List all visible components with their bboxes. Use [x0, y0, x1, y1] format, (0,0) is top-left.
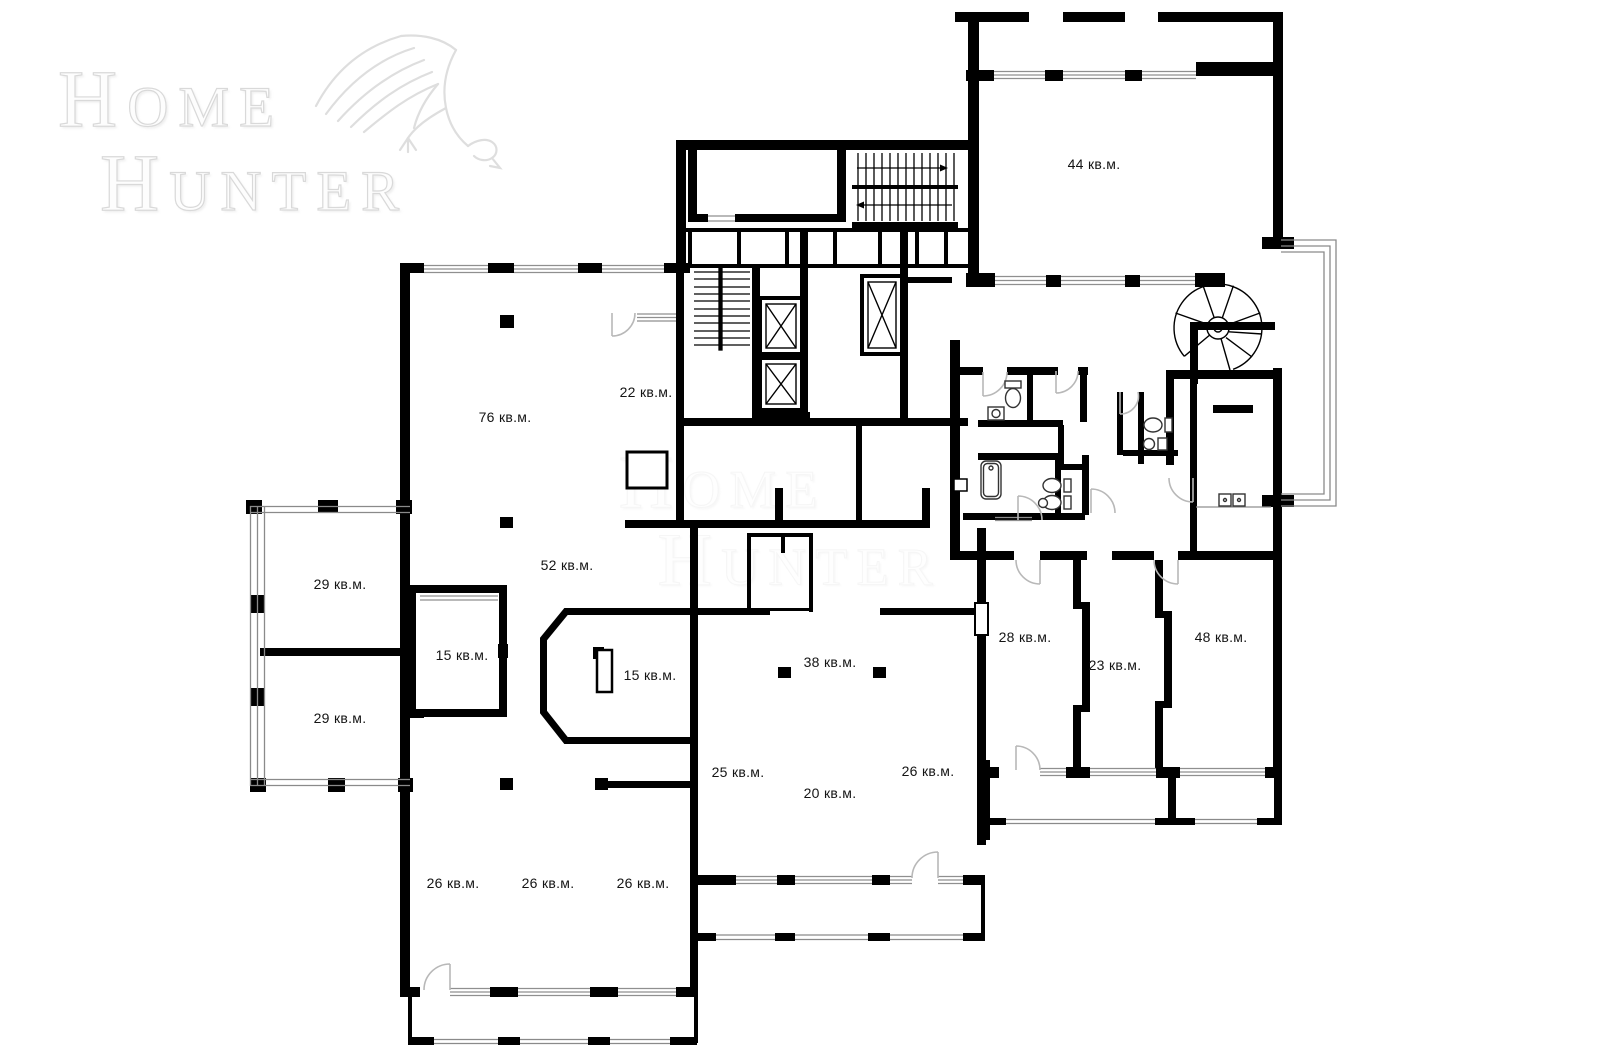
elevator-icon	[760, 358, 802, 410]
toilet-icon	[1144, 418, 1172, 432]
walls	[246, 12, 1294, 1045]
floor-plan-page: Home Hunter Home Hunter	[0, 0, 1600, 1062]
sink-icon	[988, 407, 1004, 420]
floorplan-svg	[0, 0, 1600, 1062]
bay-window	[544, 612, 696, 741]
stove-icon	[1219, 494, 1245, 506]
elevator-icon	[760, 298, 802, 354]
sauna-bench-icon	[1213, 405, 1253, 413]
toilet-icon	[1005, 381, 1021, 408]
sink-icon	[1039, 499, 1048, 508]
toilet-icon	[1043, 479, 1071, 493]
sink-icon	[1144, 438, 1168, 450]
elevators	[760, 276, 902, 410]
elevator-icon	[862, 276, 902, 354]
room-outlines	[412, 452, 988, 741]
bathtub-icon	[981, 461, 1001, 499]
staircase-icon-left	[694, 268, 750, 350]
bathroom-fixtures	[981, 381, 1245, 510]
